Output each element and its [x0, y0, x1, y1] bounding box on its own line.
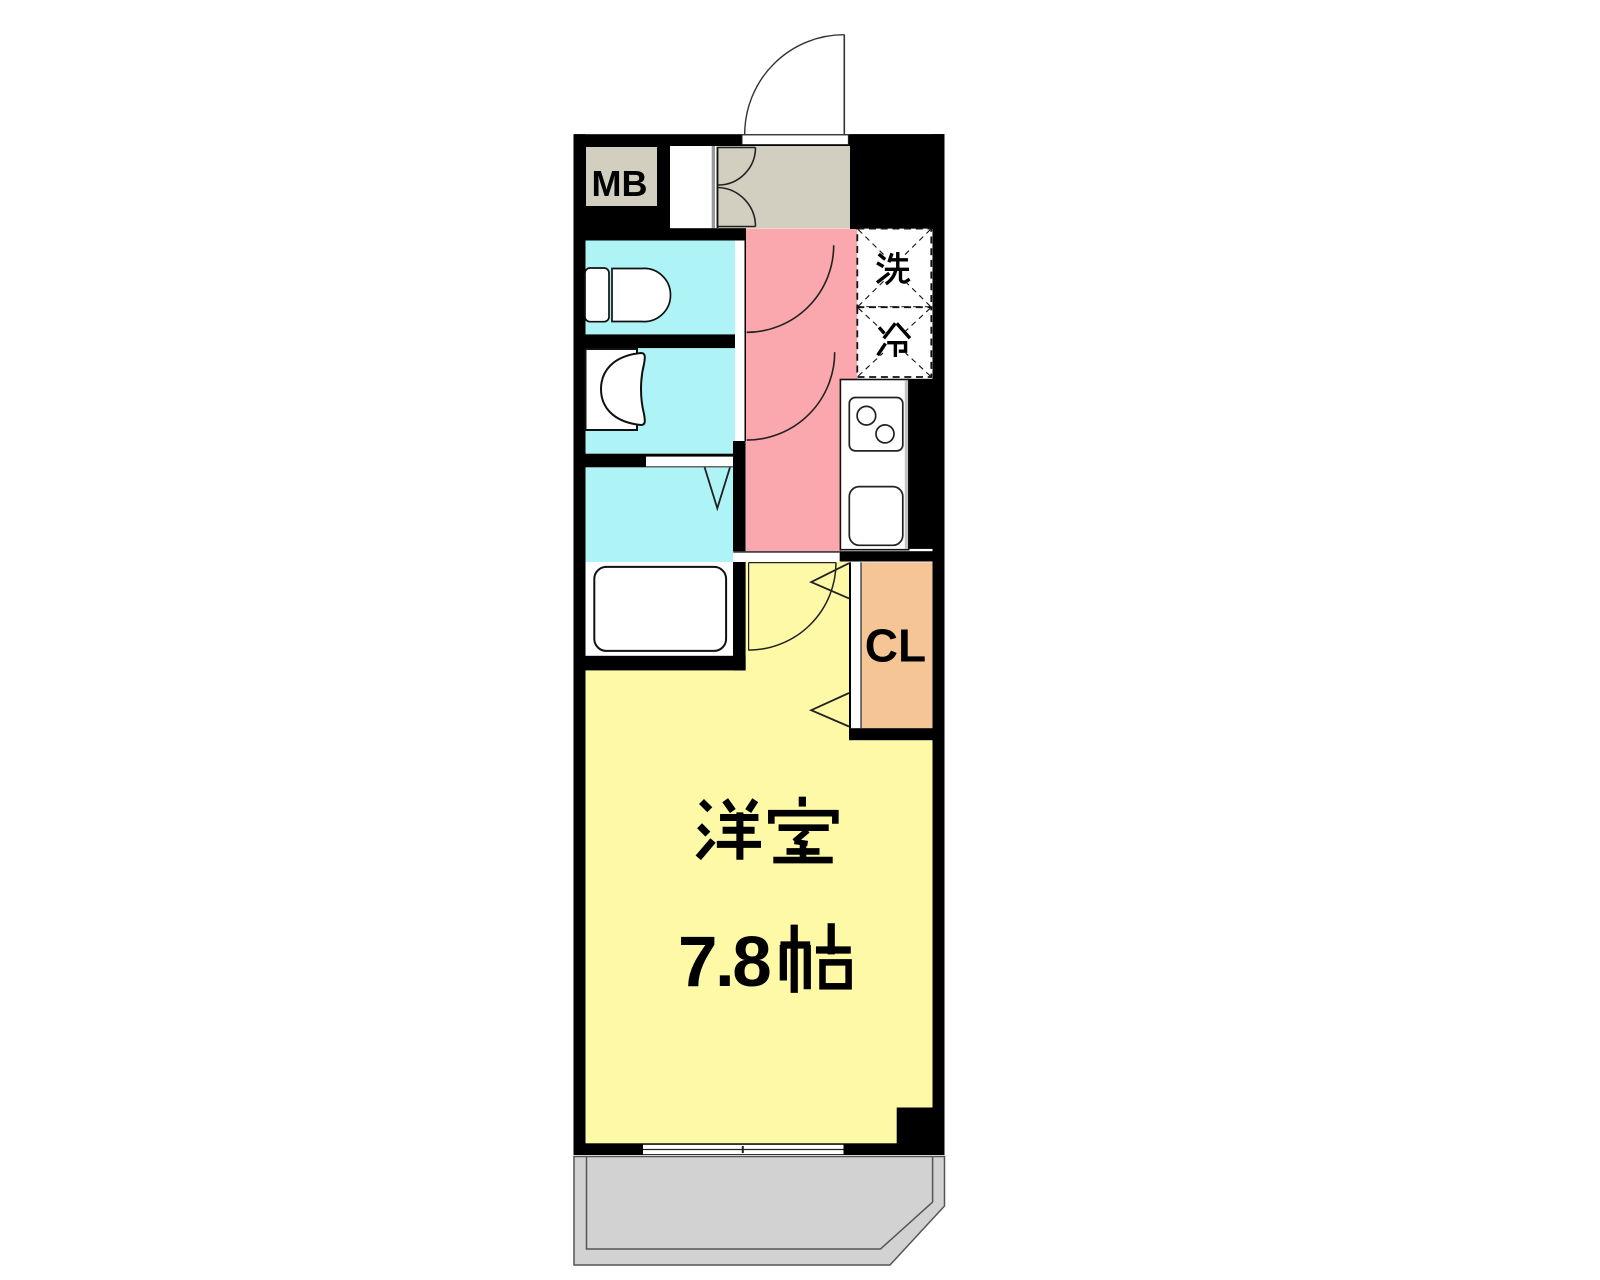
svg-text:7.8: 7.8: [678, 923, 770, 1002]
svg-text:MB: MB: [592, 163, 648, 204]
svg-text:CL: CL: [865, 619, 926, 671]
